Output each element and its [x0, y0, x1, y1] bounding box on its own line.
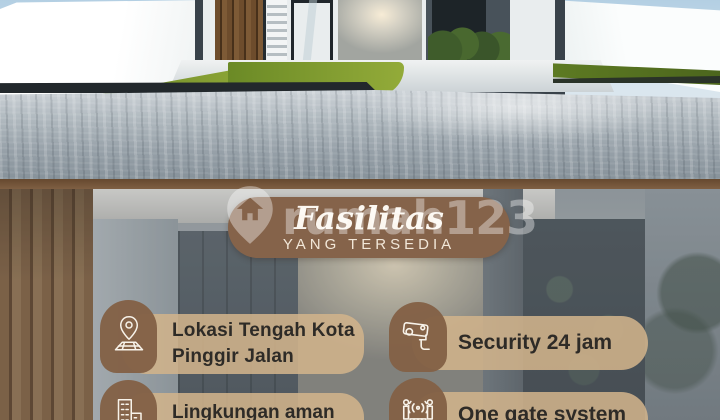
concrete-driveway [0, 90, 720, 179]
buildings-icon [111, 395, 147, 420]
feature-location-iconbox [100, 300, 157, 373]
feature-neighborhood-label: Lingkungan aman [172, 402, 364, 420]
feature-neighborhood: Lingkungan aman [122, 393, 364, 420]
real-estate-flyer: Fasilitas YANG TERSEDIA rumah123 Lokasi … [0, 0, 720, 420]
feature-security-label: Security 24 jam [458, 331, 648, 355]
rumah123-pin-icon [222, 184, 278, 251]
map-pin-icon [111, 314, 147, 359]
gate-sensor-icon [399, 392, 437, 420]
feature-gate-label: One gate system [458, 403, 648, 420]
feature-security-iconbox [389, 302, 447, 372]
watermark-text: rumah123 [282, 195, 537, 241]
feature-security: Security 24 jam [412, 316, 648, 370]
house-photo-top [0, 0, 720, 179]
feature-gate: One gate system [412, 392, 648, 420]
cctv-icon [399, 316, 437, 359]
feature-location-label: Lokasi Tengah Kota Pinggir Jalan [172, 318, 364, 370]
rumah123-watermark: rumah123 [222, 184, 537, 251]
feature-location: Lokasi Tengah Kota Pinggir Jalan [122, 314, 364, 374]
